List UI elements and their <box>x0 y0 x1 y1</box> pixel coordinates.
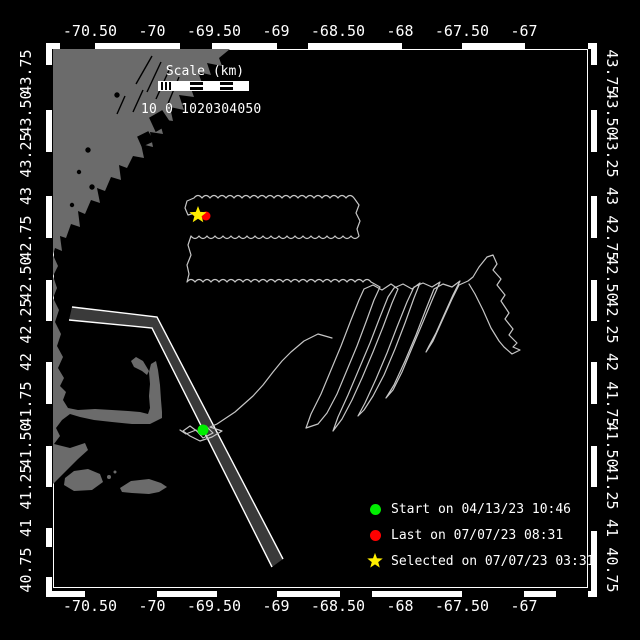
start-dot[interactable] <box>198 425 209 436</box>
lat-label-right: 40.75 <box>603 547 621 592</box>
lat-label-left: 41.75 <box>17 381 35 426</box>
scale-bar-hatch-block <box>158 81 174 91</box>
vessel-track-survey[interactable] <box>185 196 371 283</box>
legend-dot-icon <box>366 530 384 541</box>
lat-label-left: 41.25 <box>17 464 35 509</box>
frame-tick-segment <box>591 238 597 280</box>
land-provincetown-hook <box>131 357 149 375</box>
frame-tick-segment <box>46 238 52 280</box>
scale-bar-block <box>174 81 189 91</box>
lon-label-bottom: -68.50 <box>311 597 365 615</box>
lon-label-bottom: -68 <box>386 597 413 615</box>
frame-tick-segment <box>46 547 52 577</box>
shipping-lane-fill <box>69 307 283 567</box>
scale-bar-block <box>234 81 249 91</box>
lat-label-right: 42 <box>603 353 621 371</box>
legend-label: Selected on 07/07/23 03:31 <box>391 554 595 569</box>
lon-label-top: -67.50 <box>435 22 489 40</box>
island-marthas-vineyard <box>64 469 103 491</box>
lon-label-top: -69.50 <box>187 22 241 40</box>
lon-label-bottom: -70 <box>138 597 165 615</box>
frame-tick-segment <box>46 65 52 110</box>
shipping-lane <box>69 307 283 567</box>
lat-label-left: 41.50 <box>17 422 35 467</box>
legend-item: Selected on 07/07/23 03:31 <box>366 548 595 574</box>
frame-tick-segment <box>46 404 52 446</box>
island-small <box>114 471 117 474</box>
lon-label-bottom: -70.50 <box>63 597 117 615</box>
lat-label-left: 42.50 <box>17 256 35 301</box>
lat-label-right: 41 <box>603 519 621 537</box>
legend: Start on 04/13/23 10:46Last on 07/07/23 … <box>366 496 595 574</box>
scale-bar-block <box>189 81 204 91</box>
lon-label-top: -70.50 <box>63 22 117 40</box>
scale-bar-block <box>204 81 219 91</box>
lon-label-top: -68.50 <box>311 22 365 40</box>
lat-label-left: 43.25 <box>17 132 35 177</box>
frame-tick-segment <box>591 152 597 196</box>
legend-dot-icon <box>366 504 384 515</box>
lat-label-left: 41 <box>17 519 35 537</box>
scale-bar <box>158 81 249 91</box>
legend-item: Last on 07/07/23 08:31 <box>366 522 595 548</box>
legend-star-icon <box>366 551 384 571</box>
lat-label-right: 41.50 <box>603 422 621 467</box>
lat-label-right: 41.25 <box>603 464 621 509</box>
lon-label-top: -70 <box>138 22 165 40</box>
lat-label-right: 42.50 <box>603 256 621 301</box>
axis-tickbar-left <box>46 43 52 597</box>
legend-item: Start on 04/13/23 10:46 <box>366 496 595 522</box>
lat-label-right: 43.50 <box>603 90 621 135</box>
lat-label-right: 43.75 <box>603 49 621 94</box>
lat-label-right: 43 <box>603 187 621 205</box>
lat-label-right: 43.25 <box>603 132 621 177</box>
frame-tick-segment <box>556 591 588 597</box>
frame-tick-segment <box>591 404 597 446</box>
vessel-track-group[interactable] <box>180 196 520 442</box>
lon-label-bottom: -69 <box>262 597 289 615</box>
lat-label-left: 42 <box>17 353 35 371</box>
lat-label-right: 42.75 <box>603 215 621 260</box>
lat-label-right: 42.25 <box>603 298 621 343</box>
island-small <box>107 475 111 479</box>
lon-label-bottom: -67.50 <box>435 597 489 615</box>
frame-tick-segment <box>591 321 597 362</box>
start-marker[interactable] <box>198 425 209 436</box>
lat-label-right: 41.75 <box>603 381 621 426</box>
frame-tick-segment <box>46 321 52 362</box>
lat-label-left: 43.50 <box>17 90 35 135</box>
scale-bar-title: Scale (km) <box>166 64 244 79</box>
scale-bar-block <box>219 81 234 91</box>
frame-tick-segment <box>46 487 52 528</box>
lat-label-left: 42.25 <box>17 298 35 343</box>
scale-bar-tick-labels: 10 0 1020304050 <box>141 102 261 117</box>
lon-label-top: -69 <box>262 22 289 40</box>
island-nantucket <box>120 479 167 494</box>
lon-label-bottom: -67 <box>510 597 537 615</box>
legend-label: Last on 07/07/23 08:31 <box>391 528 563 543</box>
lon-label-bottom: -69.50 <box>187 597 241 615</box>
glider-track-map-page: { "colors": { "background": "#000000", "… <box>0 0 640 640</box>
frame-tick-segment <box>46 152 52 196</box>
frame-tick-segment <box>591 65 597 110</box>
lat-label-left: 43 <box>17 187 35 205</box>
lat-label-left: 43.75 <box>17 49 35 94</box>
lon-label-top: -67 <box>510 22 537 40</box>
lat-label-left: 40.75 <box>17 547 35 592</box>
lon-label-top: -68 <box>386 22 413 40</box>
lat-label-left: 42.75 <box>17 215 35 260</box>
legend-label: Start on 04/13/23 10:46 <box>391 502 571 517</box>
